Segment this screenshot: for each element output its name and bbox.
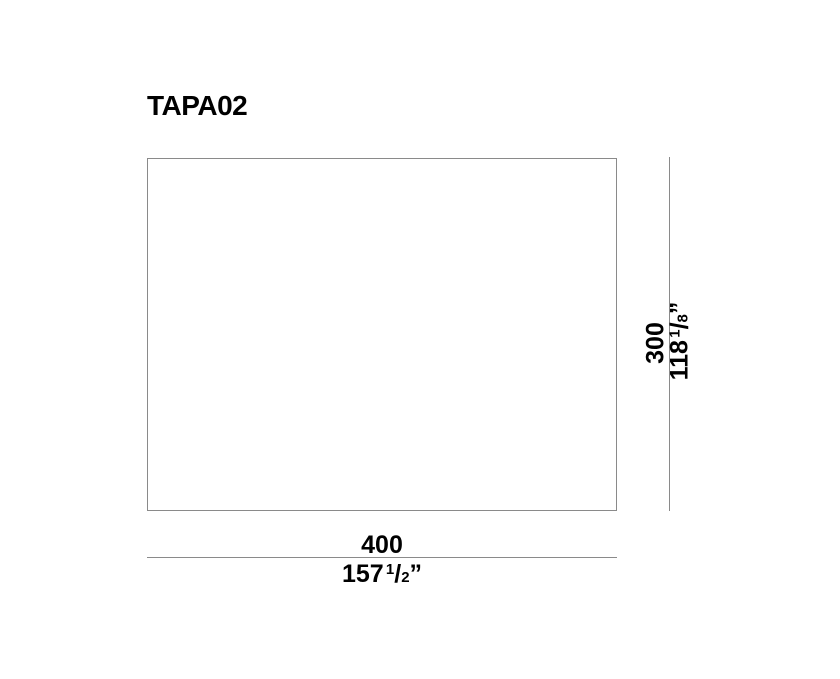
height-fraction-numerator: 1	[666, 329, 683, 337]
height-imperial-whole: 118	[666, 340, 694, 380]
width-inch-mark: ”	[410, 560, 423, 588]
width-fraction-denominator: 2	[401, 569, 409, 586]
product-dimension-diagram: TAPA02 400 1571/2” 300 1181/8”	[0, 0, 840, 679]
product-outline-rectangle	[147, 158, 617, 511]
width-metric-label: 400	[147, 533, 617, 558]
height-imperial-label: 1181/8”	[668, 302, 693, 381]
height-fraction-denominator: 8	[675, 314, 692, 322]
height-inch-mark: ”	[666, 302, 694, 315]
product-code-title: TAPA02	[147, 92, 247, 120]
width-imperial-whole: 157	[342, 560, 384, 588]
height-fraction-slash: /	[666, 322, 694, 329]
width-fraction-numerator: 1	[386, 561, 394, 578]
width-imperial-label: 1571/2”	[147, 562, 617, 587]
